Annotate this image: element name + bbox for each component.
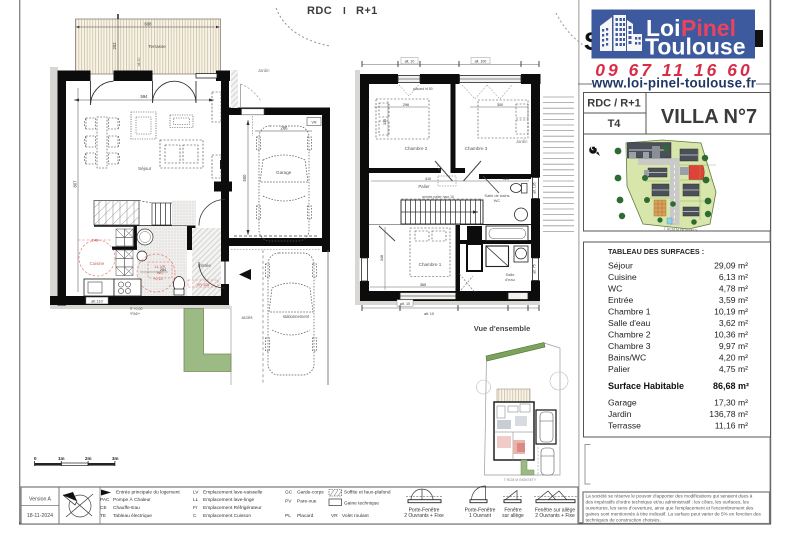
svg-text:202: 202 — [112, 42, 117, 50]
svg-text:9,97 m²: 9,97 m² — [719, 341, 748, 351]
svg-text:Terrasse: Terrasse — [608, 421, 641, 431]
svg-text:alt. 10: alt. 10 — [400, 302, 410, 306]
svg-text:alt.20: alt.20 — [137, 58, 141, 67]
svg-text:4,20 m²: 4,20 m² — [719, 353, 748, 363]
svg-text:300: 300 — [497, 103, 503, 107]
svg-text:Placard: Placard — [297, 513, 314, 519]
svg-text:Gaine technique: Gaine technique — [344, 501, 379, 507]
svg-text:17,30 m²: 17,30 m² — [714, 398, 748, 408]
svg-text:Pare-vue: Pare-vue — [297, 499, 317, 505]
svg-text:VR: VR — [331, 513, 338, 519]
svg-text:La société se réserve le pouvo: La société se réserve le pouvoir d'appor… — [586, 494, 753, 499]
svg-text:LL: LL — [193, 497, 199, 503]
svg-text:2m: 2m — [85, 456, 92, 461]
svg-text:10,36 m²: 10,36 m² — [714, 330, 748, 340]
svg-text:136,78 m²: 136,78 m² — [709, 409, 748, 419]
svg-text:10,19 m²: 10,19 m² — [714, 307, 748, 317]
svg-text:CE: CE — [100, 505, 107, 511]
svg-text:2 Ouvrants + Fixe: 2 Ouvrants + Fixe — [404, 513, 444, 519]
svg-text:PL: PL — [285, 513, 291, 519]
svg-text:R+1: R+1 — [356, 5, 378, 17]
svg-text:placard ht 50: placard ht 50 — [413, 87, 433, 91]
svg-text:alt. 10: alt. 10 — [405, 60, 415, 64]
svg-text:Entrée: Entrée — [608, 295, 634, 305]
svg-text:346: 346 — [380, 255, 384, 261]
svg-text:296: 296 — [403, 103, 409, 107]
svg-text:3,62 m²: 3,62 m² — [719, 318, 748, 328]
svg-text:stationnement: stationnement — [283, 314, 310, 319]
svg-text:120: 120 — [503, 177, 509, 181]
svg-text:+0,10: +0,10 — [153, 277, 163, 281]
svg-text:Jardin: Jardin — [608, 409, 632, 419]
svg-text:Garage: Garage — [608, 398, 637, 408]
svg-text:Cuisine: Cuisine — [608, 272, 637, 282]
svg-text:Version A: Version A — [29, 497, 51, 503]
svg-text:86,68 m²: 86,68 m² — [713, 381, 749, 391]
svg-text:Garde-corps: Garde-corps — [297, 490, 324, 496]
svg-text:Pompe À Chaleur: Pompe À Chaleur — [113, 496, 151, 503]
svg-text:www.loi-pinel-toulouse.fr: www.loi-pinel-toulouse.fr — [591, 76, 757, 91]
svg-text:Emplacement lave-vaisselle: Emplacement lave-vaisselle — [203, 490, 263, 496]
svg-text:PAC: PAC — [100, 497, 110, 503]
svg-text:T4: T4 — [608, 118, 622, 130]
svg-text:Surface Habitable: Surface Habitable — [608, 381, 684, 391]
svg-text:TABLEAU DES SURFACES :: TABLEAU DES SURFACES : — [608, 247, 704, 256]
svg-text:des impératifs d'ordre techniq: des impératifs d'ordre technique et/ou a… — [586, 500, 750, 505]
svg-text:18-11-2024: 18-11-2024 — [27, 513, 53, 519]
svg-text:alt. 10: alt. 10 — [424, 312, 434, 316]
svg-text:Emplacement lave-linge: Emplacement lave-linge — [203, 497, 255, 503]
svg-text:Bains/WC: Bains/WC — [608, 353, 646, 363]
svg-text:PV: PV — [285, 499, 292, 505]
svg-text:594: 594 — [141, 94, 149, 99]
svg-text:gaines sont mentionnés à titre: gaines sont mentionnés à titre indicatif… — [586, 512, 762, 517]
svg-text:VR: VR — [311, 121, 317, 125]
svg-text:alt. 75: alt. 75 — [533, 264, 537, 273]
svg-text:11,16 m²: 11,16 m² — [715, 421, 748, 431]
svg-text:330: 330 — [383, 119, 387, 125]
svg-text:Entrée principale du logement: Entrée principale du logement — [116, 490, 180, 496]
svg-text:alt.110: alt.110 — [91, 298, 103, 303]
svg-text:365: 365 — [420, 283, 426, 287]
svg-text:Emplacement Cuisson: Emplacement Cuisson — [203, 513, 251, 519]
svg-text:techniques de construction cho: techniques de construction choisies. — [586, 518, 661, 523]
svg-text:Chambre 1: Chambre 1 — [419, 262, 442, 267]
svg-text:Soffite et faux-plafond: Soffite et faux-plafond — [344, 490, 391, 496]
svg-text:WC: WC — [608, 284, 622, 294]
svg-text:Toulouse: Toulouse — [645, 34, 746, 60]
svg-text:3,59 m²: 3,59 m² — [719, 295, 748, 305]
svg-text:RDC: RDC — [307, 5, 332, 17]
svg-text:6,13 m²: 6,13 m² — [719, 272, 748, 282]
svg-text:4,78 m²: 4,78 m² — [719, 284, 748, 294]
svg-text:807: 807 — [73, 180, 78, 188]
svg-text:Séjour: Séjour — [608, 261, 633, 271]
svg-text:sur allège: sur allège — [502, 513, 524, 519]
svg-text:RDC / R+1: RDC / R+1 — [587, 98, 641, 110]
svg-text:Chambre 3: Chambre 3 — [608, 341, 651, 351]
svg-text:GC: GC — [285, 490, 293, 496]
svg-text:Chambre 1: Chambre 1 — [608, 307, 651, 317]
svg-text:ouvertures, les sens d'ouvertu: ouvertures, les sens d'ouverture, ainsi … — [586, 506, 755, 511]
svg-text:608: 608 — [145, 22, 153, 27]
svg-text:LV: LV — [193, 490, 199, 496]
svg-text:Entrée: Entrée — [198, 263, 211, 268]
svg-text:Garage: Garage — [276, 170, 292, 175]
svg-text:TE: TE — [100, 513, 106, 519]
svg-text:Terrasse: Terrasse — [148, 44, 166, 49]
svg-text:WC: WC — [494, 198, 501, 203]
svg-text:Palier: Palier — [418, 184, 430, 189]
svg-text:*PAD*: *PAD* — [130, 312, 141, 316]
svg-text:286: 286 — [281, 126, 289, 131]
svg-text:Chauffe-Eau: Chauffe-Eau — [113, 505, 140, 511]
svg-text:4,75 m²: 4,75 m² — [719, 364, 748, 374]
svg-text:Séjour: Séjour — [138, 166, 152, 171]
svg-text:VR 105: VR 105 — [197, 283, 210, 287]
svg-text:2 Ouvrants + Fixe: 2 Ouvrants + Fixe — [535, 513, 575, 519]
svg-text:1m: 1m — [58, 456, 65, 461]
svg-text:arrivée palier haut 15: arrivée palier haut 15 — [422, 195, 454, 199]
svg-text:Cuisine: Cuisine — [90, 261, 105, 266]
svg-text:Tableau électrique: Tableau électrique — [113, 513, 152, 519]
svg-text:accès: accès — [242, 315, 253, 320]
svg-text:Chambre 2: Chambre 2 — [608, 330, 651, 340]
svg-text:Emplacement Réfrigérateur: Emplacement Réfrigérateur — [203, 505, 262, 511]
svg-text:Jardin: Jardin — [516, 139, 528, 144]
svg-text:Salle d'eau: Salle d'eau — [608, 318, 650, 328]
svg-text:I: I — [343, 6, 346, 17]
svg-text:∇ +0,00: ∇ +0,00 — [129, 307, 143, 311]
svg-text:284: 284 — [160, 268, 166, 272]
svg-text:alt. 135: alt. 135 — [533, 182, 537, 193]
svg-text:Jardin: Jardin — [258, 68, 270, 73]
svg-text:alt. 100: alt. 100 — [475, 60, 487, 64]
svg-text:410: 410 — [425, 177, 431, 181]
svg-text:Volet roulant: Volet roulant — [342, 513, 369, 519]
svg-text:1 Ouvrant: 1 Ouvrant — [469, 513, 492, 519]
svg-text:C: C — [193, 513, 197, 519]
svg-text:Chambre 2: Chambre 2 — [405, 146, 428, 151]
svg-text:Vue d'ensemble: Vue d'ensemble — [474, 324, 531, 333]
svg-text:Fr: Fr — [193, 505, 198, 511]
svg-text:VILLA N°7: VILLA N°7 — [661, 106, 757, 128]
svg-text:d'eau: d'eau — [505, 277, 515, 282]
svg-text:Chambre 3: Chambre 3 — [465, 146, 488, 151]
svg-text:248: 248 — [92, 238, 99, 243]
svg-text:500: 500 — [242, 174, 247, 182]
svg-text:29,09 m²: 29,09 m² — [714, 261, 748, 271]
svg-text:Palier: Palier — [608, 364, 630, 374]
svg-text:3m: 3m — [112, 456, 119, 461]
svg-text:Γ RCM M ΘΙΟΚΕΕΓΥ: Γ RCM M ΘΙΟΚΕΕΓΥ — [504, 478, 537, 482]
